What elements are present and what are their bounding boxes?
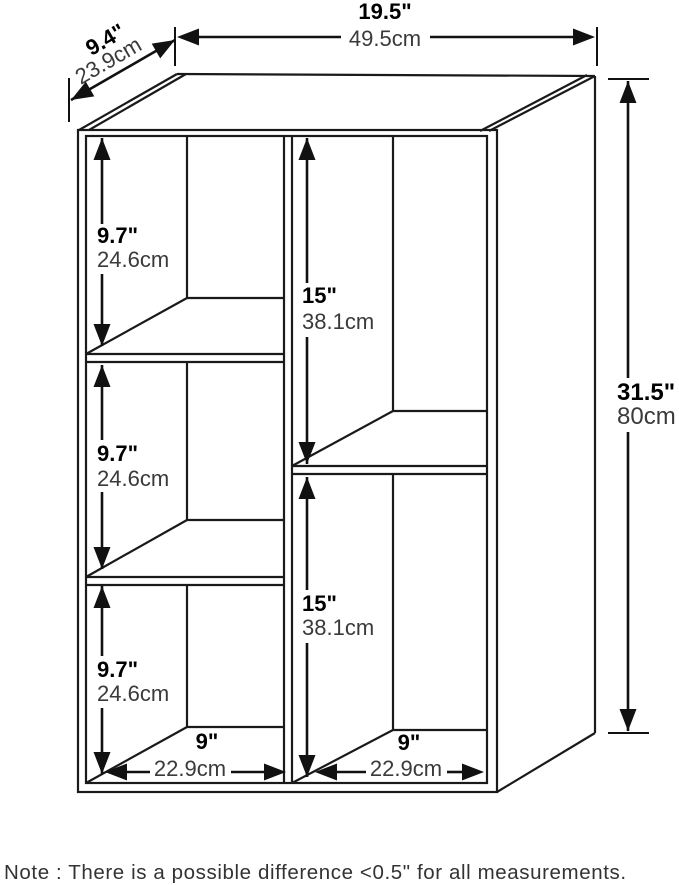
arrow-up-icon <box>299 477 316 499</box>
left-cubby-3-inches-label: 9.7" <box>97 657 138 682</box>
dim-overall-width: 19.5" 49.5cm <box>175 0 597 66</box>
dim-left-cubby-width: 9" 22.9cm <box>105 729 286 781</box>
arrow-down-icon <box>620 709 637 731</box>
arrow-right-icon <box>264 764 286 781</box>
right-side-panel <box>497 76 595 792</box>
measurement-note: Note : There is a possible difference <0… <box>4 861 627 884</box>
dim-left-cubby-3: 9.7" 24.6cm <box>94 586 170 774</box>
overall-width-inches-label: 19.5" <box>358 0 411 24</box>
diagram-canvas: 19.5" 49.5cm 9.4" 23.9cm 31.5" 80cm <box>0 0 679 885</box>
left-cubby-1-cm-label: 24.6cm <box>97 247 169 272</box>
right-cubby-1-inches-label: 15" <box>302 283 337 308</box>
left-cubby-3-cm-label: 24.6cm <box>97 681 169 706</box>
arrow-up-icon <box>94 586 111 608</box>
top-panel <box>79 74 595 131</box>
left-cubby-2-inches-label: 9.7" <box>97 441 138 466</box>
dimension-annotations: 19.5" 49.5cm 9.4" 23.9cm 31.5" 80cm <box>69 0 676 781</box>
overall-height-cm-label: 80cm <box>617 403 676 430</box>
overall-height-inches-label: 31.5" <box>617 379 675 406</box>
right-cubby-width-inches-label: 9" <box>398 730 421 755</box>
arrow-up-icon <box>94 365 111 387</box>
dim-left-cubby-2: 9.7" 24.6cm <box>94 365 170 569</box>
arrow-up-icon <box>94 138 111 160</box>
left-shelf-1 <box>86 354 284 362</box>
arrow-up-right-icon <box>152 40 175 58</box>
arrow-left-icon <box>177 29 199 46</box>
left-cubby-width-inches-label: 9" <box>196 729 219 754</box>
arrow-right-icon <box>573 29 595 46</box>
right-cubby-2-inches-label: 15" <box>302 591 337 616</box>
arrow-up-icon <box>620 81 637 103</box>
right-cubby-1-cm-label: 38.1cm <box>302 309 374 334</box>
left-shelf-2 <box>86 577 284 585</box>
right-cubby-2-cm-label: 38.1cm <box>302 615 374 640</box>
dim-right-cubby-1: 15" 38.1cm <box>299 138 375 464</box>
cabinet-dimension-diagram: 19.5" 49.5cm 9.4" 23.9cm 31.5" 80cm <box>0 0 679 885</box>
dim-right-cubby-2: 15" 38.1cm <box>299 477 375 777</box>
overall-width-cm-label: 49.5cm <box>349 26 421 51</box>
left-cubby-1-inches-label: 9.7" <box>97 223 138 248</box>
right-cubby-width-cm-label: 22.9cm <box>370 756 442 781</box>
left-cubby-width-cm-label: 22.9cm <box>154 756 226 781</box>
right-shelf <box>292 466 487 474</box>
center-divider <box>284 137 292 783</box>
arrow-down-icon <box>299 755 316 777</box>
dim-overall-height: 31.5" 80cm <box>608 79 676 733</box>
arrow-right-icon <box>462 764 484 781</box>
dim-right-cubby-width: 9" 22.9cm <box>315 730 484 781</box>
left-cubby-2-cm-label: 24.6cm <box>97 466 169 491</box>
arrow-up-icon <box>299 138 316 160</box>
